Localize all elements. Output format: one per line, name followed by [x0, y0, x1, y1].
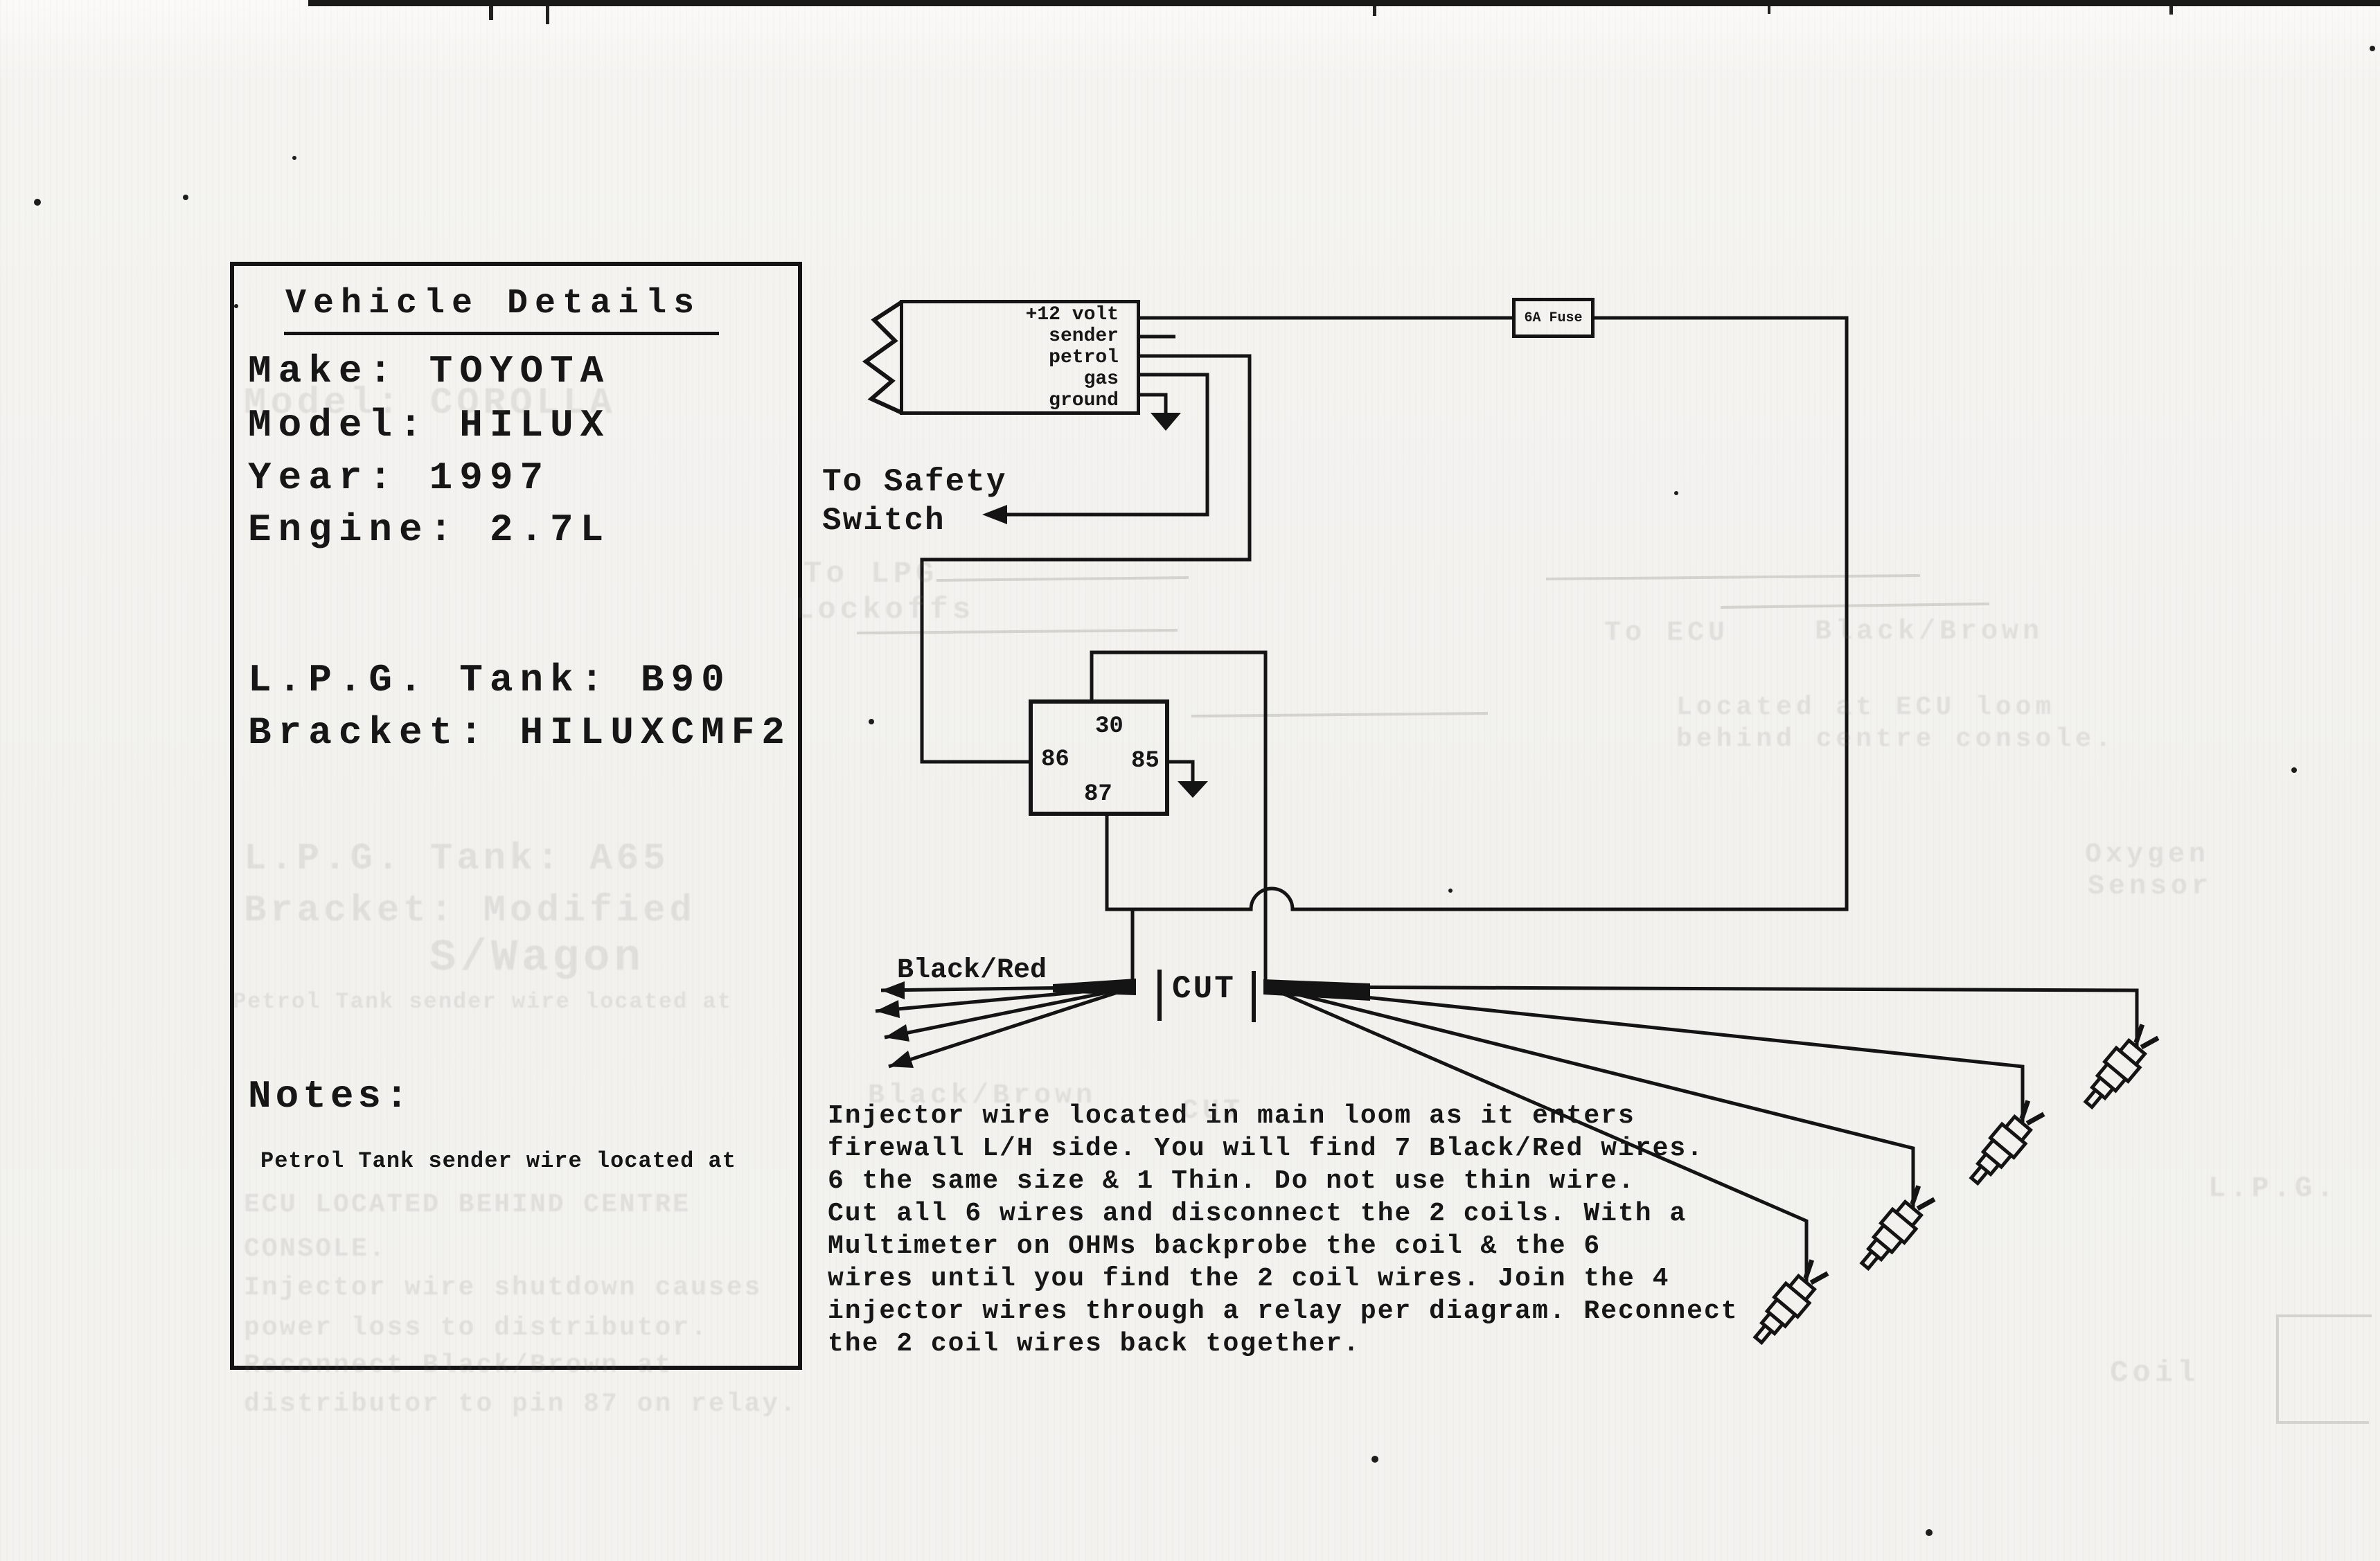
ghost-text: L.P.G. [2208, 1172, 2338, 1205]
relay-box: 30 86 85 87 [1029, 699, 1169, 816]
pin-label-12v: +12 volt [1026, 304, 1119, 325]
fuse-label: 6A Fuse [1524, 310, 1582, 326]
safety-switch-line2: Switch [822, 501, 1006, 540]
ghost-text: distributor to pin 87 on relay. [244, 1389, 798, 1419]
ground-arrow-icon [1178, 781, 1208, 798]
ghost-text: Petrol Tank sender wire located at [233, 989, 732, 1015]
vehicle-engine: Engine: 2.7L [248, 508, 610, 552]
ghost-text: To LPG [803, 557, 938, 591]
wire-bundle-wedge [1053, 979, 1136, 995]
ghost-text: behind centre console. [1676, 724, 2115, 754]
ghost-text: Coil [2110, 1356, 2200, 1391]
fuel-injector-icon [1747, 1257, 1831, 1350]
pin-label-ground: ground [1049, 390, 1119, 411]
relay-pin-30: 30 [1095, 713, 1124, 740]
pin-label-sender: sender [1049, 325, 1119, 347]
wire-arrowhead-icon [889, 1051, 914, 1068]
relay-pin-87: 87 [1084, 781, 1112, 808]
pin-label-gas: gas [1084, 368, 1119, 390]
gauge-sender-unit-box: +12 volt sender petrol gas ground [900, 300, 1140, 415]
notes-detail: Petrol Tank sender wire located at [260, 1148, 736, 1174]
wire-bundle-wedge [1263, 979, 1370, 1001]
ghost-text: Black/Brown [868, 1080, 1096, 1112]
cut-label: CUT [1172, 971, 1236, 1007]
fuel-injector-icon [2077, 1022, 2162, 1114]
wire-relay-85-ground [1169, 762, 1193, 783]
loom-torn-edge [866, 302, 902, 413]
relay-pin-86: 86 [1041, 747, 1069, 773]
ghost-text: Oxygen [2085, 839, 2210, 871]
instruction-line: injector wires through a relay per diagr… [828, 1295, 1739, 1328]
pin-label-petrol: petrol [1049, 347, 1119, 368]
ghost-text: Sensor [2088, 871, 2212, 902]
ghost-text: Bracket: Modified [244, 890, 696, 932]
ghost-text: Injector wire shutdown causes [244, 1273, 762, 1303]
instruction-line: the 2 coil wires back together. [828, 1328, 1739, 1360]
fuel-injector-icon [1963, 1098, 2048, 1190]
ground-arrow-icon [1151, 413, 1181, 431]
fuse-box: 6A Fuse [1512, 298, 1595, 338]
instruction-line: Cut all 6 wires and disconnect the 2 coi… [828, 1197, 1739, 1230]
notes-heading: Notes: [248, 1074, 413, 1118]
relay-pin-85: 85 [1131, 748, 1160, 774]
ghost-text: S/Wagon [429, 934, 645, 983]
ghost-text: CONSOLE. [244, 1234, 387, 1264]
fuel-injector-icon [1854, 1183, 1938, 1276]
safety-switch-label: To Safety Switch [822, 463, 1006, 540]
instruction-line: Multimeter on OHMs backprobe the coil & … [828, 1230, 1739, 1263]
ghost-text: To ECU [1604, 618, 1729, 649]
ghost-text: power loss to distributor. [244, 1313, 709, 1343]
instruction-line: 6 the same size & 1 Thin. Do not use thi… [828, 1165, 1739, 1197]
vehicle-details-title: Vehicle Details [284, 284, 719, 335]
ghost-text: Model: COROLLA [244, 382, 616, 425]
ghost-text: Black/Brown [1815, 616, 2043, 648]
safety-switch-line1: To Safety [822, 463, 1006, 501]
installation-instructions: Injector wire located in main loom as it… [828, 1100, 1739, 1360]
ghost-text: CUT [1182, 1096, 1244, 1127]
wire-fuse-loop-to-relay-87 [1107, 318, 1847, 909]
ghost-text: ECU LOCATED BEHIND CENTRE [244, 1190, 691, 1220]
ghost-text: Lockoffs [795, 593, 975, 627]
instruction-line: wires until you find the 2 coil wires. J… [828, 1263, 1739, 1295]
wire-gauge-ground [1140, 395, 1166, 414]
lpg-bracket: Bracket: HILUXCMF2 [248, 711, 792, 755]
ghost-text: Located at ECU loom [1676, 693, 2055, 722]
ghost-text: Reconnect Black/Brown at [244, 1350, 673, 1380]
wire-color-label: Black/Red [897, 955, 1047, 986]
wire-arrowhead-icon [885, 1024, 909, 1042]
scanned-lpg-conversion-sheet: Vehicle Details Make: TOYOTA Model: HILU… [0, 0, 2380, 1561]
vehicle-year: Year: 1997 [248, 456, 550, 500]
lpg-tank: L.P.G. Tank: B90 [248, 658, 731, 702]
instruction-line: firewall L/H side. You will find 7 Black… [828, 1132, 1739, 1165]
loom-side-wire-fan [876, 987, 1135, 1067]
ghost-text: L.P.G. Tank: A65 [244, 838, 669, 880]
